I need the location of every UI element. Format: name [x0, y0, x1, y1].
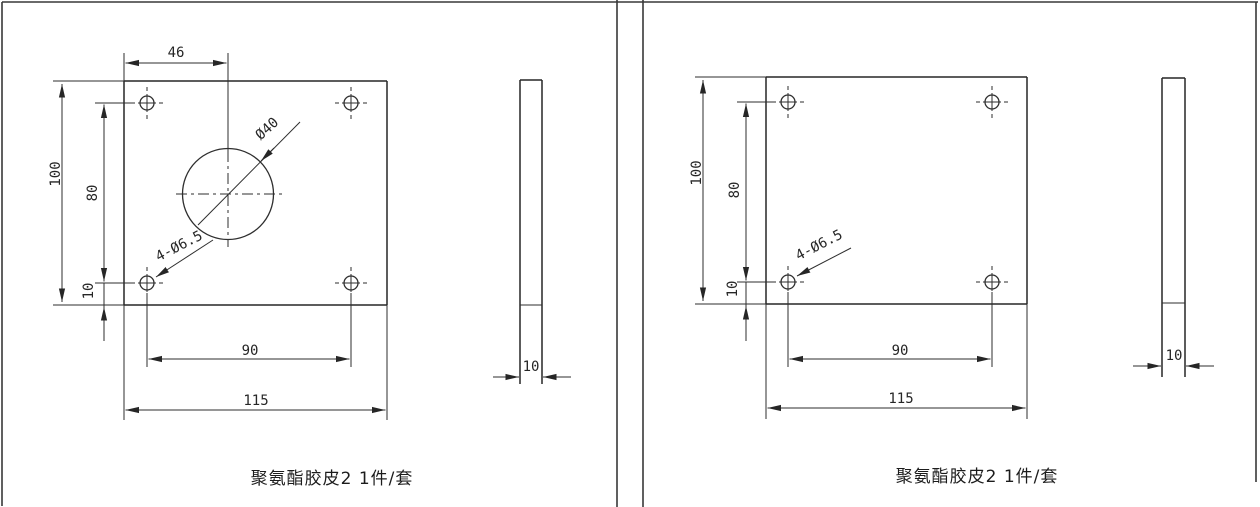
dim-thickness: 10 [493, 359, 571, 377]
dim-label-thickness: 10 [523, 359, 540, 375]
center-hole-label: Ø40 [253, 115, 283, 144]
sheet-frame [2, 0, 1258, 507]
dim-offset-x: 46 [126, 45, 227, 63]
front-view-outline [695, 77, 1027, 419]
dim-width: 115 [126, 393, 386, 410]
panel-right: 4-Ø6.5 100 80 10 90 [689, 77, 1214, 487]
dim-label-edge-offset: 10 [81, 283, 97, 300]
dim-label-thickness: 10 [1166, 348, 1183, 364]
dim-height: 100 [48, 84, 64, 302]
dim-label-hole-span-h: 90 [242, 343, 259, 359]
part-caption: 聚氨酯胶皮2 1件/套 [896, 467, 1059, 487]
part-caption: 聚氨酯胶皮2 1件/套 [251, 469, 414, 489]
dim-label-width: 115 [243, 393, 268, 409]
dim-hole-span-v: 80 [727, 102, 776, 282]
corner-holes [772, 86, 1008, 298]
engineering-drawing: Ø40 4-Ø6.5 46 100 80 10 [0, 0, 1260, 507]
dim-edge-offset: 10 [725, 281, 746, 341]
dim-hole-span-v: 80 [85, 103, 134, 283]
diameter-leader-line [198, 122, 300, 225]
dim-label-height: 100 [48, 161, 64, 186]
dim-label-offset-x: 46 [168, 45, 185, 61]
dim-height: 100 [689, 80, 705, 301]
corner-holes-label: 4-Ø6.5 [153, 228, 205, 265]
center-hole: Ø40 [176, 53, 300, 247]
dim-edge-offset: 10 [81, 283, 104, 341]
dim-label-hole-span-v: 80 [85, 185, 101, 202]
hole-symbol-top-left [772, 86, 804, 118]
dim-label-height: 100 [689, 160, 705, 185]
hole-symbol-top-right [335, 87, 367, 119]
dim-width: 115 [768, 391, 1026, 408]
dim-hole-span-h: 90 [147, 293, 351, 367]
corner-holes-leader: 4-Ø6.5 [793, 227, 851, 276]
dim-thickness: 10 [1133, 348, 1214, 366]
dim-label-hole-span-v: 80 [727, 182, 743, 199]
dim-label-edge-offset: 10 [725, 281, 741, 298]
side-view: 10 [1133, 78, 1214, 377]
corner-holes-leader: 4-Ø6.5 [153, 228, 213, 277]
panel-left: Ø40 4-Ø6.5 46 100 80 10 [48, 45, 571, 489]
diameter-leader-arrow [261, 148, 274, 161]
corner-holes [131, 87, 367, 299]
drawing-sheet: Ø40 4-Ø6.5 46 100 80 10 [0, 0, 1260, 507]
corner-holes-label: 4-Ø6.5 [793, 227, 845, 264]
hole-symbol-top-left [131, 87, 163, 119]
dim-label-hole-span-h: 90 [892, 343, 909, 359]
dim-label-width: 115 [888, 391, 913, 407]
hole-symbol-top-right [976, 86, 1008, 118]
front-view-outline [53, 53, 387, 420]
side-view: 10 [493, 80, 571, 384]
